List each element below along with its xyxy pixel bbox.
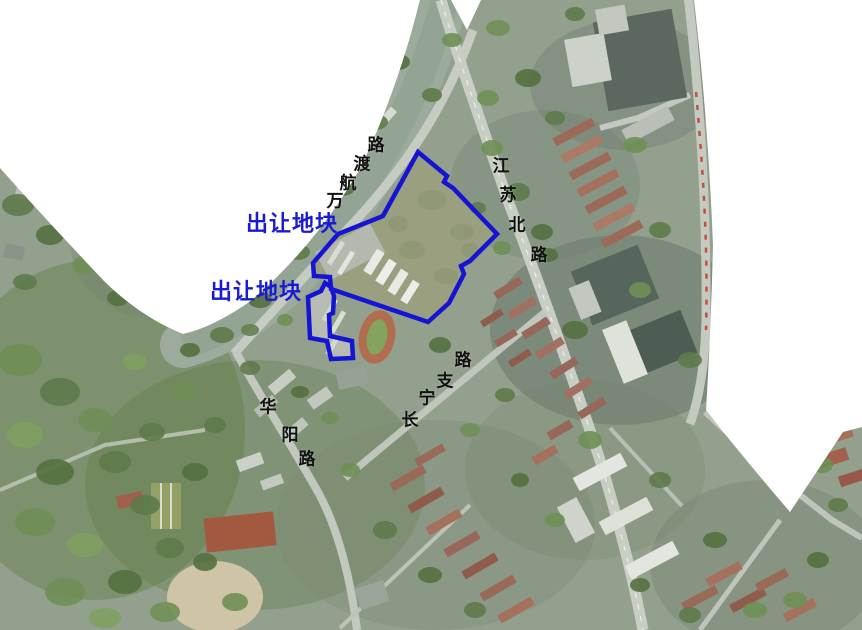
- satellite-photo: [0, 0, 862, 630]
- aerial-site-map: 出让地块 出让地块 万 航 渡 路 江 苏 北 路 长 宁 支 路 华 阳 路: [0, 0, 862, 630]
